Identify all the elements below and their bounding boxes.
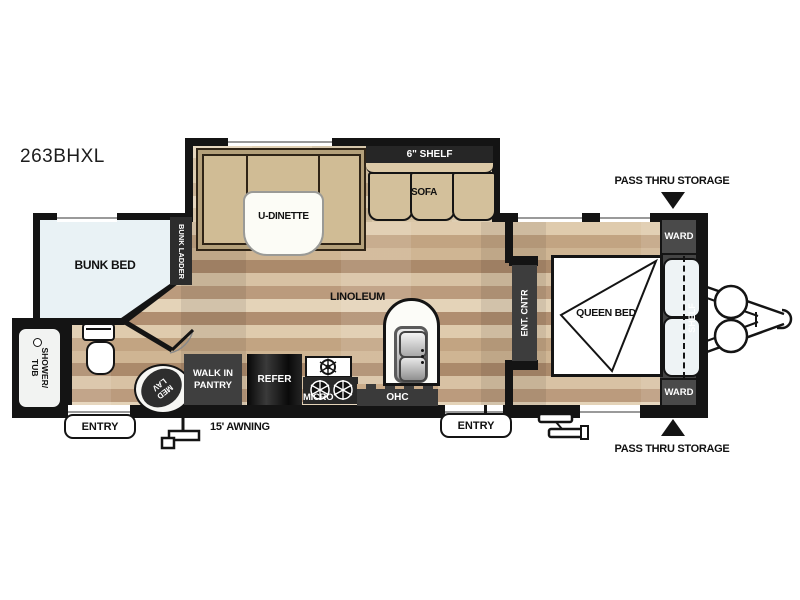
refrigerator: REFER xyxy=(247,354,302,405)
window-bedroom-2 xyxy=(600,213,650,222)
bunk-ladder-label: BUNK LADDER xyxy=(177,224,186,279)
awning-bracket xyxy=(160,405,208,451)
linoleum-label: LINOLEUM xyxy=(330,291,385,303)
sink-bowl-bottom xyxy=(399,356,427,382)
sink-bowl-top xyxy=(399,331,427,358)
floorplan-canvas: 263BHXL BUNK BED BUNK LADDER U-DINETTE 6… xyxy=(0,0,800,600)
stabilizer-jack xyxy=(536,410,590,444)
shelf-label: SHELF xyxy=(687,303,697,333)
overhead-cabinet: OHC xyxy=(357,384,438,406)
bunk-ladder: BUNK LADDER xyxy=(170,217,192,285)
six-inch-shelf-label: 6" SHELF xyxy=(407,149,453,160)
shower-drain xyxy=(33,338,42,347)
awning-label: 15' AWNING xyxy=(210,421,270,433)
window-rear xyxy=(57,213,117,222)
pass-thru-bottom-arrow xyxy=(661,419,685,436)
queen-bed-label: QUEEN BED xyxy=(560,306,652,319)
entry-label-left: ENTRY xyxy=(64,414,136,439)
refer-label: REFER xyxy=(258,374,292,385)
propane-tank-1 xyxy=(715,286,747,318)
window-bedroom-1 xyxy=(518,213,582,222)
u-dinette-label: U-DINETTE xyxy=(245,211,322,222)
kitchen-sink xyxy=(394,326,428,383)
window-slideout xyxy=(228,138,332,146)
shower-tub-label: SHOWER/ TUB xyxy=(30,348,50,389)
sink-faucet-dot-3 xyxy=(421,361,424,364)
sofa-shelf-bar: 6" SHELF xyxy=(366,146,493,163)
range-counter xyxy=(305,356,352,378)
model-number: 263BHXL xyxy=(20,146,105,168)
pass-thru-top-arrow xyxy=(661,192,685,209)
wardrobe-top: WARD xyxy=(660,218,698,255)
sofa-cushion-right xyxy=(452,172,496,221)
wardrobe-bottom: WARD xyxy=(660,378,698,407)
ohc-label: OHC xyxy=(386,392,408,403)
pass-thru-bottom-label: PASS THRU STORAGE xyxy=(598,442,746,456)
sink-faucet-dot-1 xyxy=(421,349,424,352)
ward-top-label: WARD xyxy=(664,231,693,242)
burner-top xyxy=(307,358,350,376)
hitch-assembly xyxy=(694,250,800,390)
pass-thru-top-label: PASS THRU STORAGE xyxy=(598,174,746,188)
walk-in-pantry: WALK IN PANTRY xyxy=(184,354,242,405)
shower-tub: SHOWER/ TUB xyxy=(16,326,63,410)
bunk-bed-label: BUNK BED xyxy=(55,258,155,272)
ent-cntr: ENT. CNTR xyxy=(512,265,537,361)
propane-tank-2 xyxy=(715,320,747,352)
micro-label: MICRO xyxy=(303,392,333,403)
med-lav-label: MED LAV xyxy=(149,376,174,401)
wall-slideout-left xyxy=(185,138,193,222)
dinette-table: U-DINETTE xyxy=(243,191,324,256)
sink-faucet-dot-2 xyxy=(421,355,424,358)
ent-cntr-cap-bottom xyxy=(509,360,538,370)
entry-label-main: ENTRY xyxy=(440,413,512,438)
ward-bottom-label: WARD xyxy=(664,387,693,398)
pantry-label: WALK IN PANTRY xyxy=(193,368,233,391)
ent-cntr-label: ENT. CNTR xyxy=(520,290,530,337)
sofa-label: SOFA xyxy=(400,186,448,199)
shelf-label-wrap: SHELF xyxy=(684,283,700,353)
